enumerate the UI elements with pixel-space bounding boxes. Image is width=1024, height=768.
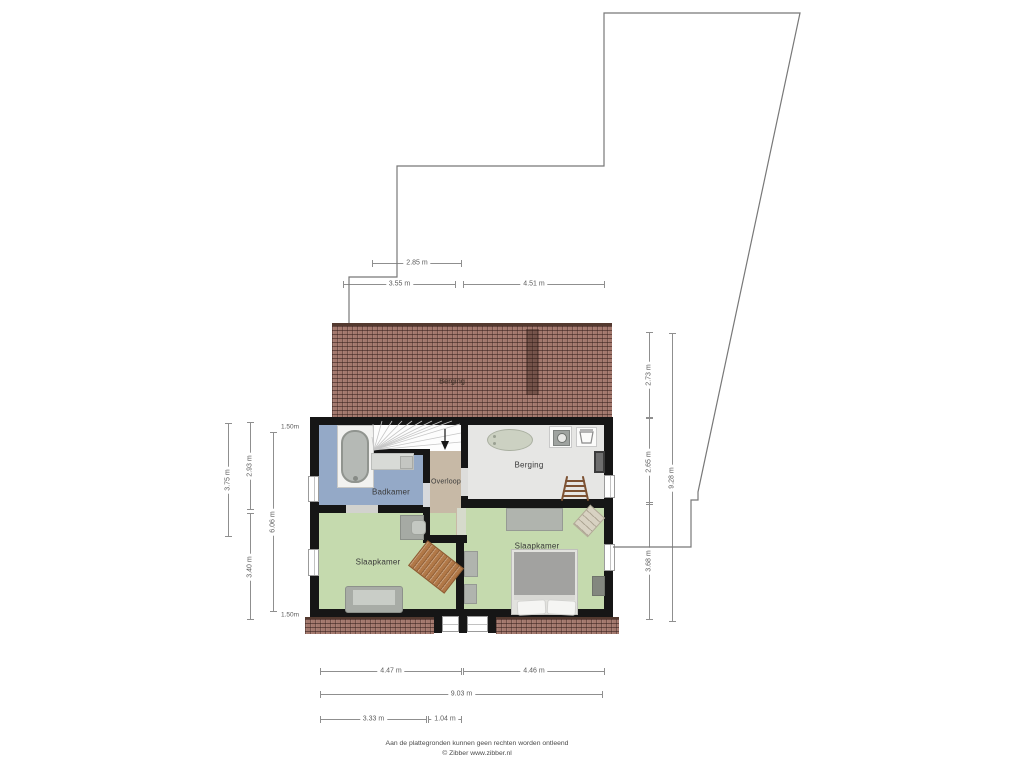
laundry-basket-icon (576, 427, 597, 447)
bathtub-faucet (353, 476, 358, 481)
bed-blanket (514, 552, 575, 596)
tub-tap (493, 442, 496, 445)
door-badkamer (423, 483, 430, 507)
dimension-left-3_40: 3.40 m (250, 513, 251, 620)
dimension-left-6_06: 6.06 m (273, 432, 274, 612)
sofa-icon (345, 586, 403, 613)
attic-room-label: Berging (439, 377, 465, 386)
dresser-icon (506, 508, 563, 531)
stairwell (372, 421, 461, 451)
door-slaapkamer-left (346, 505, 378, 513)
sink-icon (400, 456, 413, 469)
room-label-berging: Berging (515, 461, 544, 470)
height-mark-bottom: 1.50m (279, 612, 301, 619)
dormer-window (467, 616, 488, 632)
washer-drum (557, 433, 567, 443)
bathroom-counter (371, 453, 414, 470)
wardrobe-icon (464, 551, 478, 577)
wardrobe-icon (464, 584, 477, 604)
chimney (526, 329, 539, 395)
cabinet-face (596, 453, 603, 471)
window (308, 476, 319, 502)
dimension-bottom-3_33: 3.33 m (320, 719, 427, 720)
bathtub-oval-icon (487, 429, 533, 451)
washing-machine-icon (549, 426, 572, 448)
room-label-slaapkamer-left: Slaapkamer (356, 558, 401, 567)
nightstand-icon (592, 576, 605, 596)
dimension-top-2_85: 2.85 m (372, 263, 462, 264)
room-label-overloop: Overloop (431, 479, 461, 486)
dormer-mullion (488, 609, 496, 633)
sofa-seat (353, 590, 395, 605)
chair-icon (411, 520, 426, 535)
dimension-left-2_93: 2.93 m (250, 422, 251, 510)
dimension-left-3_75: 3.75 m (228, 423, 229, 537)
pillow (547, 599, 577, 615)
door-slaapkamer-right (457, 508, 466, 535)
footer-copyright: © Zibber www.zibber.nl (277, 749, 677, 759)
height-mark-top: 1.50m (279, 424, 301, 431)
dimension-right-2_65: 2.65 m (649, 418, 650, 505)
window (604, 544, 615, 571)
dimension-right-9_28: 9.28 m (672, 333, 673, 622)
dimension-right-2_73: 2.73 m (649, 332, 650, 418)
dimension-bottom-4_46: 4.46 m (463, 671, 605, 672)
dormer-mullion (459, 609, 467, 633)
footer: Aan de plattegronden kunnen geen rechten… (277, 739, 677, 759)
room-label-badkamer: Badkamer (372, 488, 410, 497)
roof-strip (496, 617, 619, 634)
wall (310, 417, 319, 617)
bathtub-icon (337, 425, 374, 488)
dormer-mullion (434, 609, 442, 633)
roof-area (332, 323, 612, 425)
dimension-right-3_68: 3.68 m (649, 502, 650, 620)
dimension-top-3_55: 3.55 m (343, 284, 456, 285)
washer-body (553, 430, 570, 446)
door-berging (461, 468, 468, 496)
dimension-bottom-9_03: 9.03 m (320, 694, 603, 695)
dimension-top-4_51: 4.51 m (463, 284, 605, 285)
window (308, 549, 319, 576)
tub-tap (493, 435, 496, 438)
footer-disclaimer: Aan de plattegronden kunnen geen rechten… (277, 739, 677, 749)
dormer-window (442, 616, 459, 632)
room-label-slaapkamer-right: Slaapkamer (515, 542, 560, 551)
dimension-bottom-4_47: 4.47 m (320, 671, 462, 672)
roof-strip (305, 617, 434, 634)
bed-icon (511, 549, 578, 615)
pillow (517, 599, 547, 615)
floorplan: Berging (0, 0, 1024, 768)
window (604, 475, 615, 498)
storage-cabinet (594, 451, 605, 473)
dimension-bottom-1_04: 1.04 m (428, 719, 462, 720)
wall (604, 417, 613, 617)
